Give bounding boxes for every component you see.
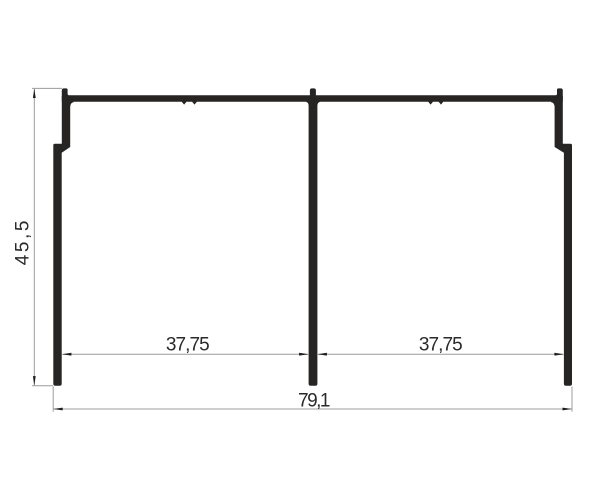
svg-text:79,1: 79,1 (298, 390, 330, 411)
svg-text:37,75: 37,75 (419, 334, 462, 355)
svg-text:45,5: 45,5 (13, 218, 34, 265)
svg-text:37,75: 37,75 (166, 334, 209, 355)
